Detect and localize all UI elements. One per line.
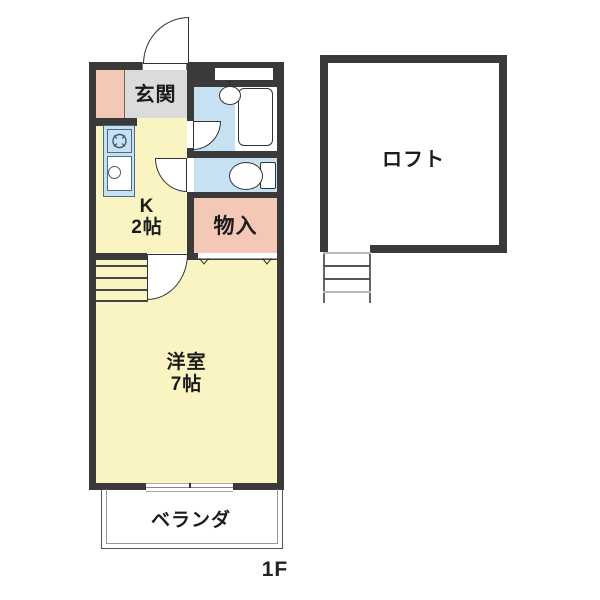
ladder-icon [322,250,372,305]
wall-left [89,62,96,490]
closet-chevron-right [262,258,272,265]
western-room-label: 洋室 7帖 [96,352,277,396]
loft-wall-top [320,55,507,63]
window-center-tick [189,483,191,488]
kitchen-label-size: 2帖 [107,217,187,238]
loft-wall-right [499,55,507,253]
sink-drain [108,166,121,179]
toilet-door-opening [187,158,194,192]
stove-icon [107,129,132,153]
loft-label: ロフト [328,143,499,172]
western-room-name: 洋室 [96,352,277,374]
genkan-label: 玄関 [124,78,187,107]
wall-toilet-storage [187,192,284,198]
storage-label: 物入 [194,210,277,240]
wall-right [277,62,284,490]
entrance-door-arc [143,17,189,64]
floor-label: 1F [250,558,300,582]
western-room-size: 7帖 [96,374,277,396]
loft-wall-left [320,55,328,252]
washbasin-icon [219,86,241,105]
bathroom-vent-strip [215,68,273,80]
stairs-icon [96,260,148,302]
kitchen-label: K 2帖 [107,196,187,238]
closet-chevron-left [199,258,209,265]
entrance-closet [96,70,124,118]
loft-wall-bottom [370,245,507,253]
veranda-label: ベランダ [101,505,281,532]
floor-plan: 玄関 K 2帖 物入 洋室 7帖 ベランダ ロフト 1F [0,0,600,600]
toilet-icon [229,162,263,190]
wall-bath-toilet [187,151,284,158]
bathtub-icon [238,88,273,146]
kitchen-label-letter: K [107,196,187,217]
